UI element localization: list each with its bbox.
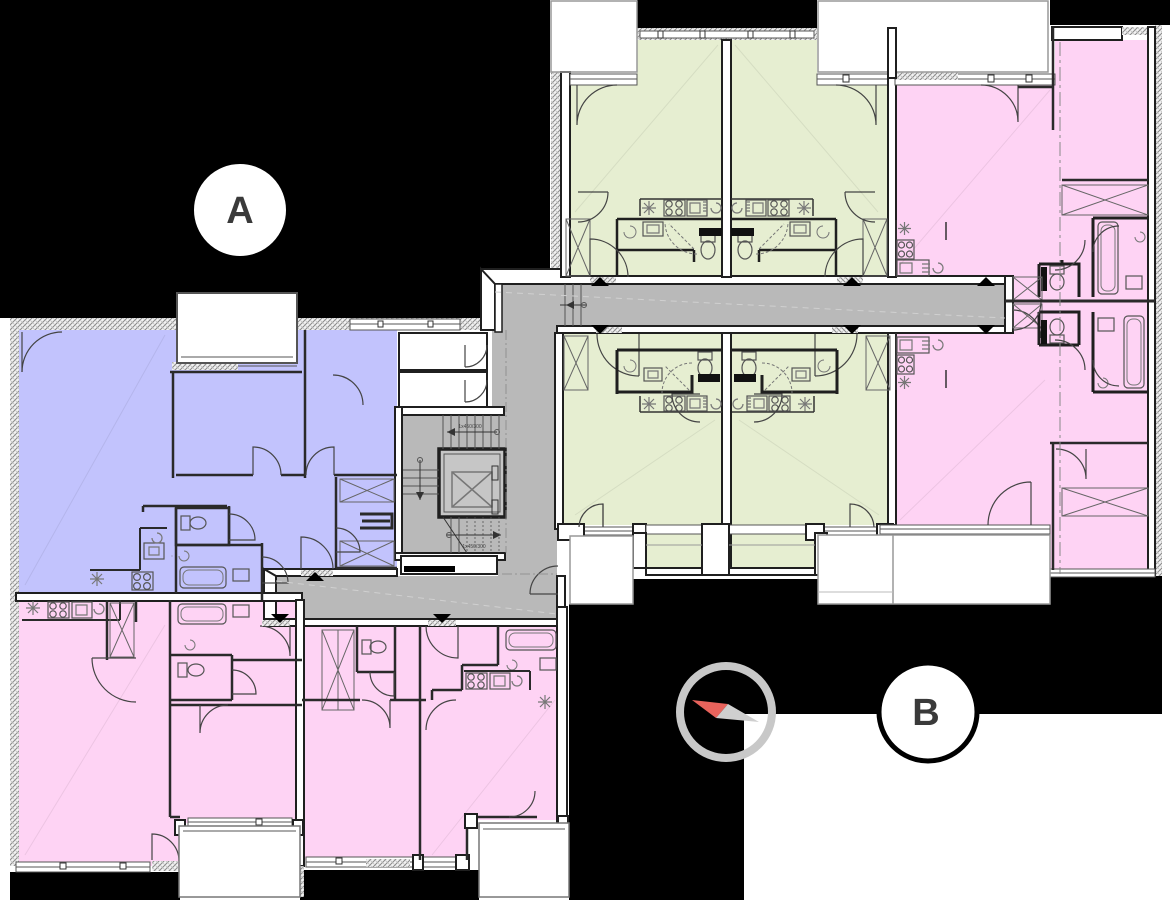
svg-text:A: A (226, 190, 253, 232)
svg-text:1x450/300: 1x450/300 (462, 544, 486, 550)
svg-text:B: B (912, 692, 939, 734)
svg-text:1x450/300: 1x450/300 (458, 424, 482, 430)
